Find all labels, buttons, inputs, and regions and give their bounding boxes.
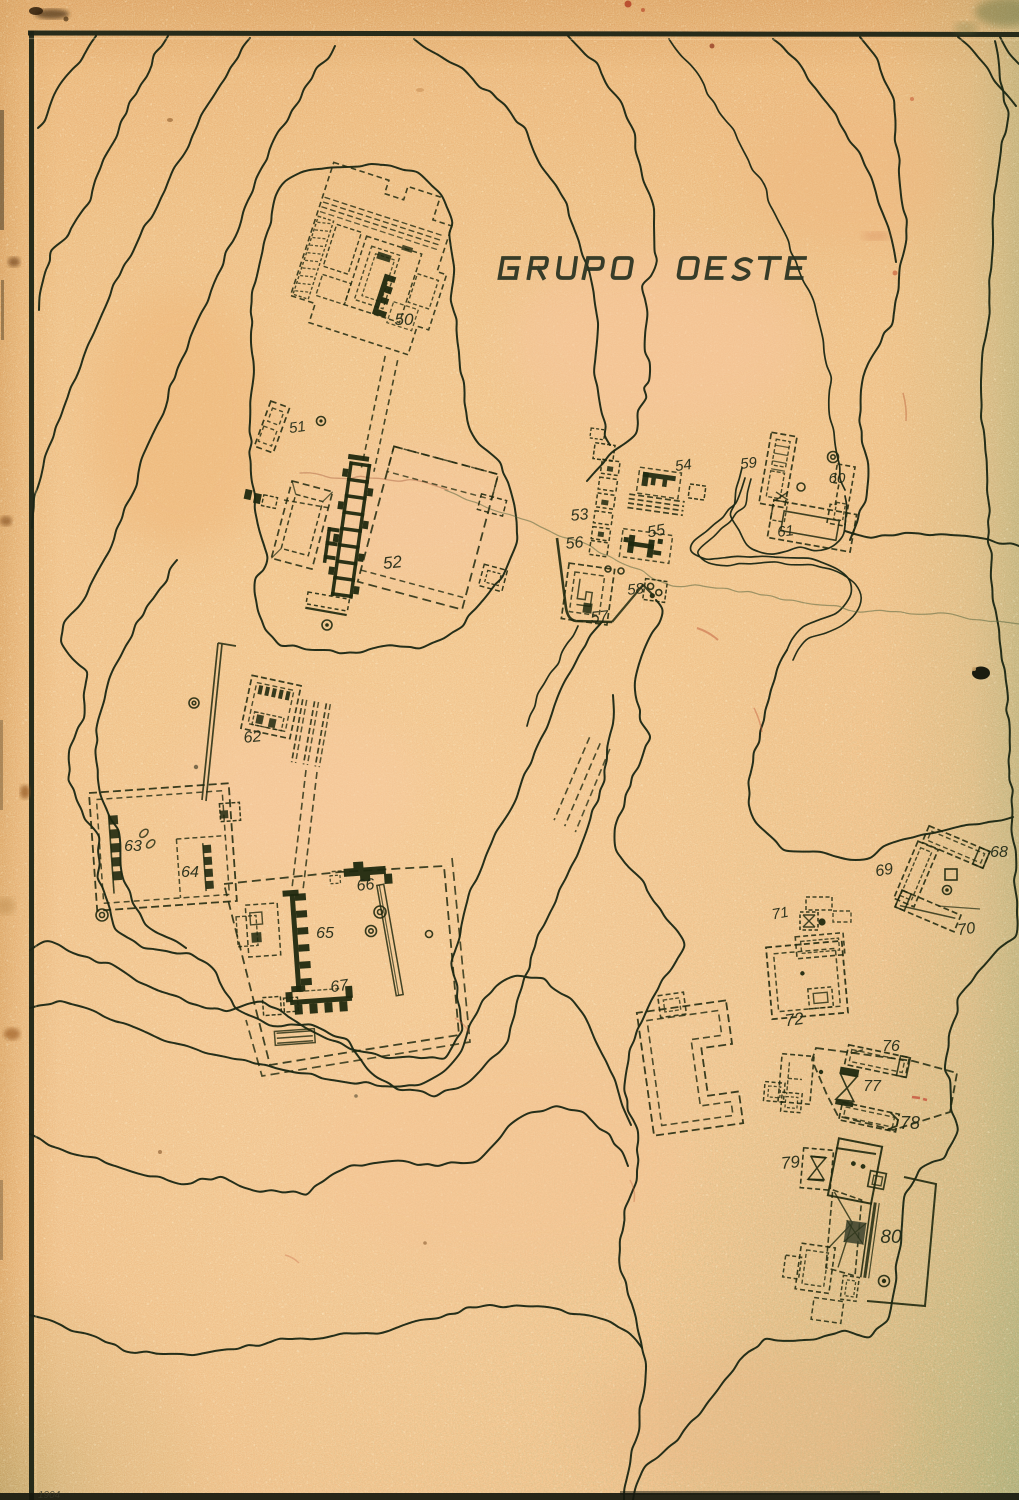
svg-text:54: 54 — [674, 456, 693, 475]
svg-text:77: 77 — [863, 1078, 882, 1095]
svg-text:65: 65 — [316, 925, 334, 942]
svg-text:76: 76 — [882, 1038, 900, 1055]
svg-text:60: 60 — [829, 470, 846, 487]
svg-text:78: 78 — [900, 1113, 920, 1133]
svg-text:61: 61 — [776, 522, 794, 541]
svg-text:67: 67 — [329, 977, 350, 996]
svg-text:51: 51 — [288, 418, 307, 437]
svg-text:52: 52 — [382, 552, 403, 573]
svg-text:62: 62 — [243, 728, 263, 747]
svg-text:50: 50 — [395, 310, 414, 329]
svg-text:56: 56 — [565, 534, 585, 553]
svg-text:59: 59 — [739, 454, 758, 473]
svg-text:64: 64 — [181, 864, 199, 881]
svg-text:58: 58 — [626, 580, 645, 599]
svg-text:80: 80 — [880, 1227, 902, 1248]
svg-text:53: 53 — [570, 506, 590, 525]
svg-text:70: 70 — [956, 920, 976, 939]
svg-text:66: 66 — [356, 876, 376, 895]
svg-text:72: 72 — [784, 1009, 806, 1031]
svg-text:57: 57 — [590, 608, 611, 627]
svg-text:69: 69 — [874, 861, 895, 881]
svg-text:68: 68 — [990, 844, 1008, 861]
svg-text:71: 71 — [771, 904, 790, 924]
svg-text:55: 55 — [646, 522, 667, 542]
svg-text:63: 63 — [124, 838, 142, 855]
svg-text:1904: 1904 — [38, 1490, 61, 1500]
svg-text:79: 79 — [780, 1152, 801, 1173]
